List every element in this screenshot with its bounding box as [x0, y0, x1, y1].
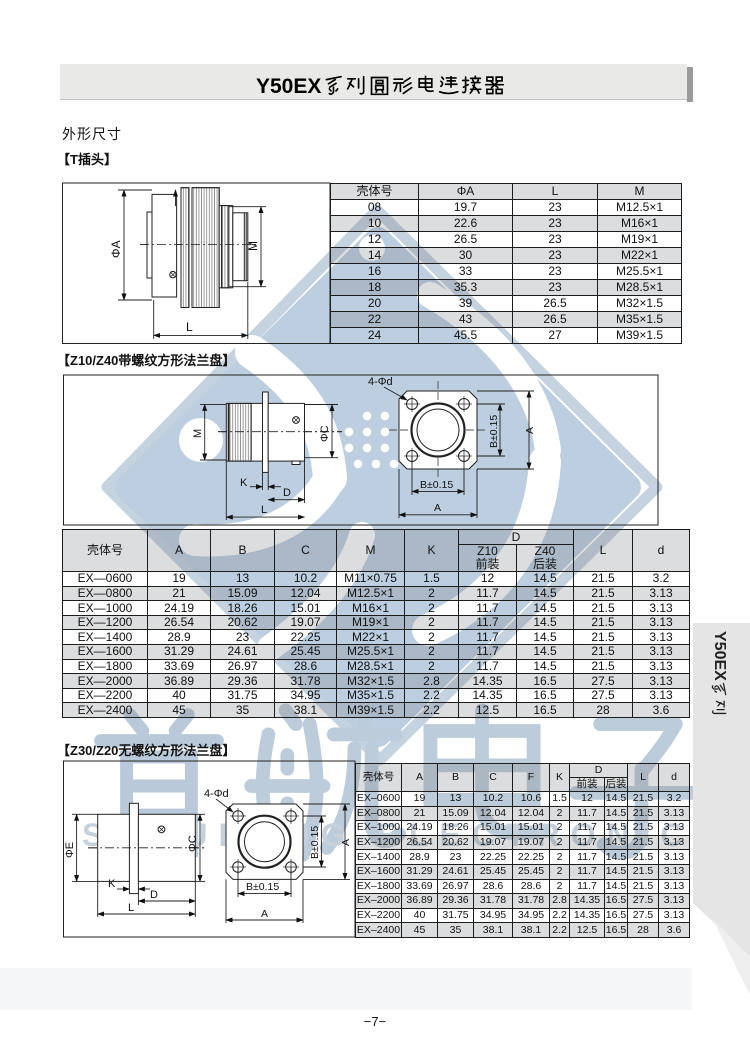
svg-text:M: M: [192, 429, 204, 438]
svg-text:ΦC: ΦC: [187, 835, 199, 852]
svg-text:B±0.15: B±0.15: [309, 826, 321, 859]
svg-text:4-Φd: 4-Φd: [204, 788, 229, 800]
svg-text:A: A: [340, 839, 352, 846]
svg-text:D: D: [150, 889, 158, 901]
svg-text:D: D: [283, 487, 291, 499]
svg-text:4-Φd: 4-Φd: [368, 376, 393, 388]
svg-text:L: L: [186, 320, 193, 334]
svg-text:K: K: [108, 878, 116, 890]
svg-text:K: K: [240, 477, 248, 489]
svg-text:B±0.15: B±0.15: [488, 415, 500, 448]
svg-text:M: M: [246, 241, 260, 251]
svg-text:B±0.15: B±0.15: [246, 881, 279, 893]
svg-text:A: A: [434, 502, 441, 514]
svg-text:A: A: [261, 908, 268, 920]
svg-text:L: L: [128, 902, 134, 914]
svg-text:L: L: [261, 504, 267, 516]
svg-text:ΦE: ΦE: [64, 842, 76, 858]
svg-text:ΦA: ΦA: [109, 240, 123, 258]
svg-text:A: A: [524, 427, 536, 434]
svg-text:ΦC: ΦC: [319, 425, 331, 442]
svg-text:B±0.15: B±0.15: [420, 479, 453, 491]
